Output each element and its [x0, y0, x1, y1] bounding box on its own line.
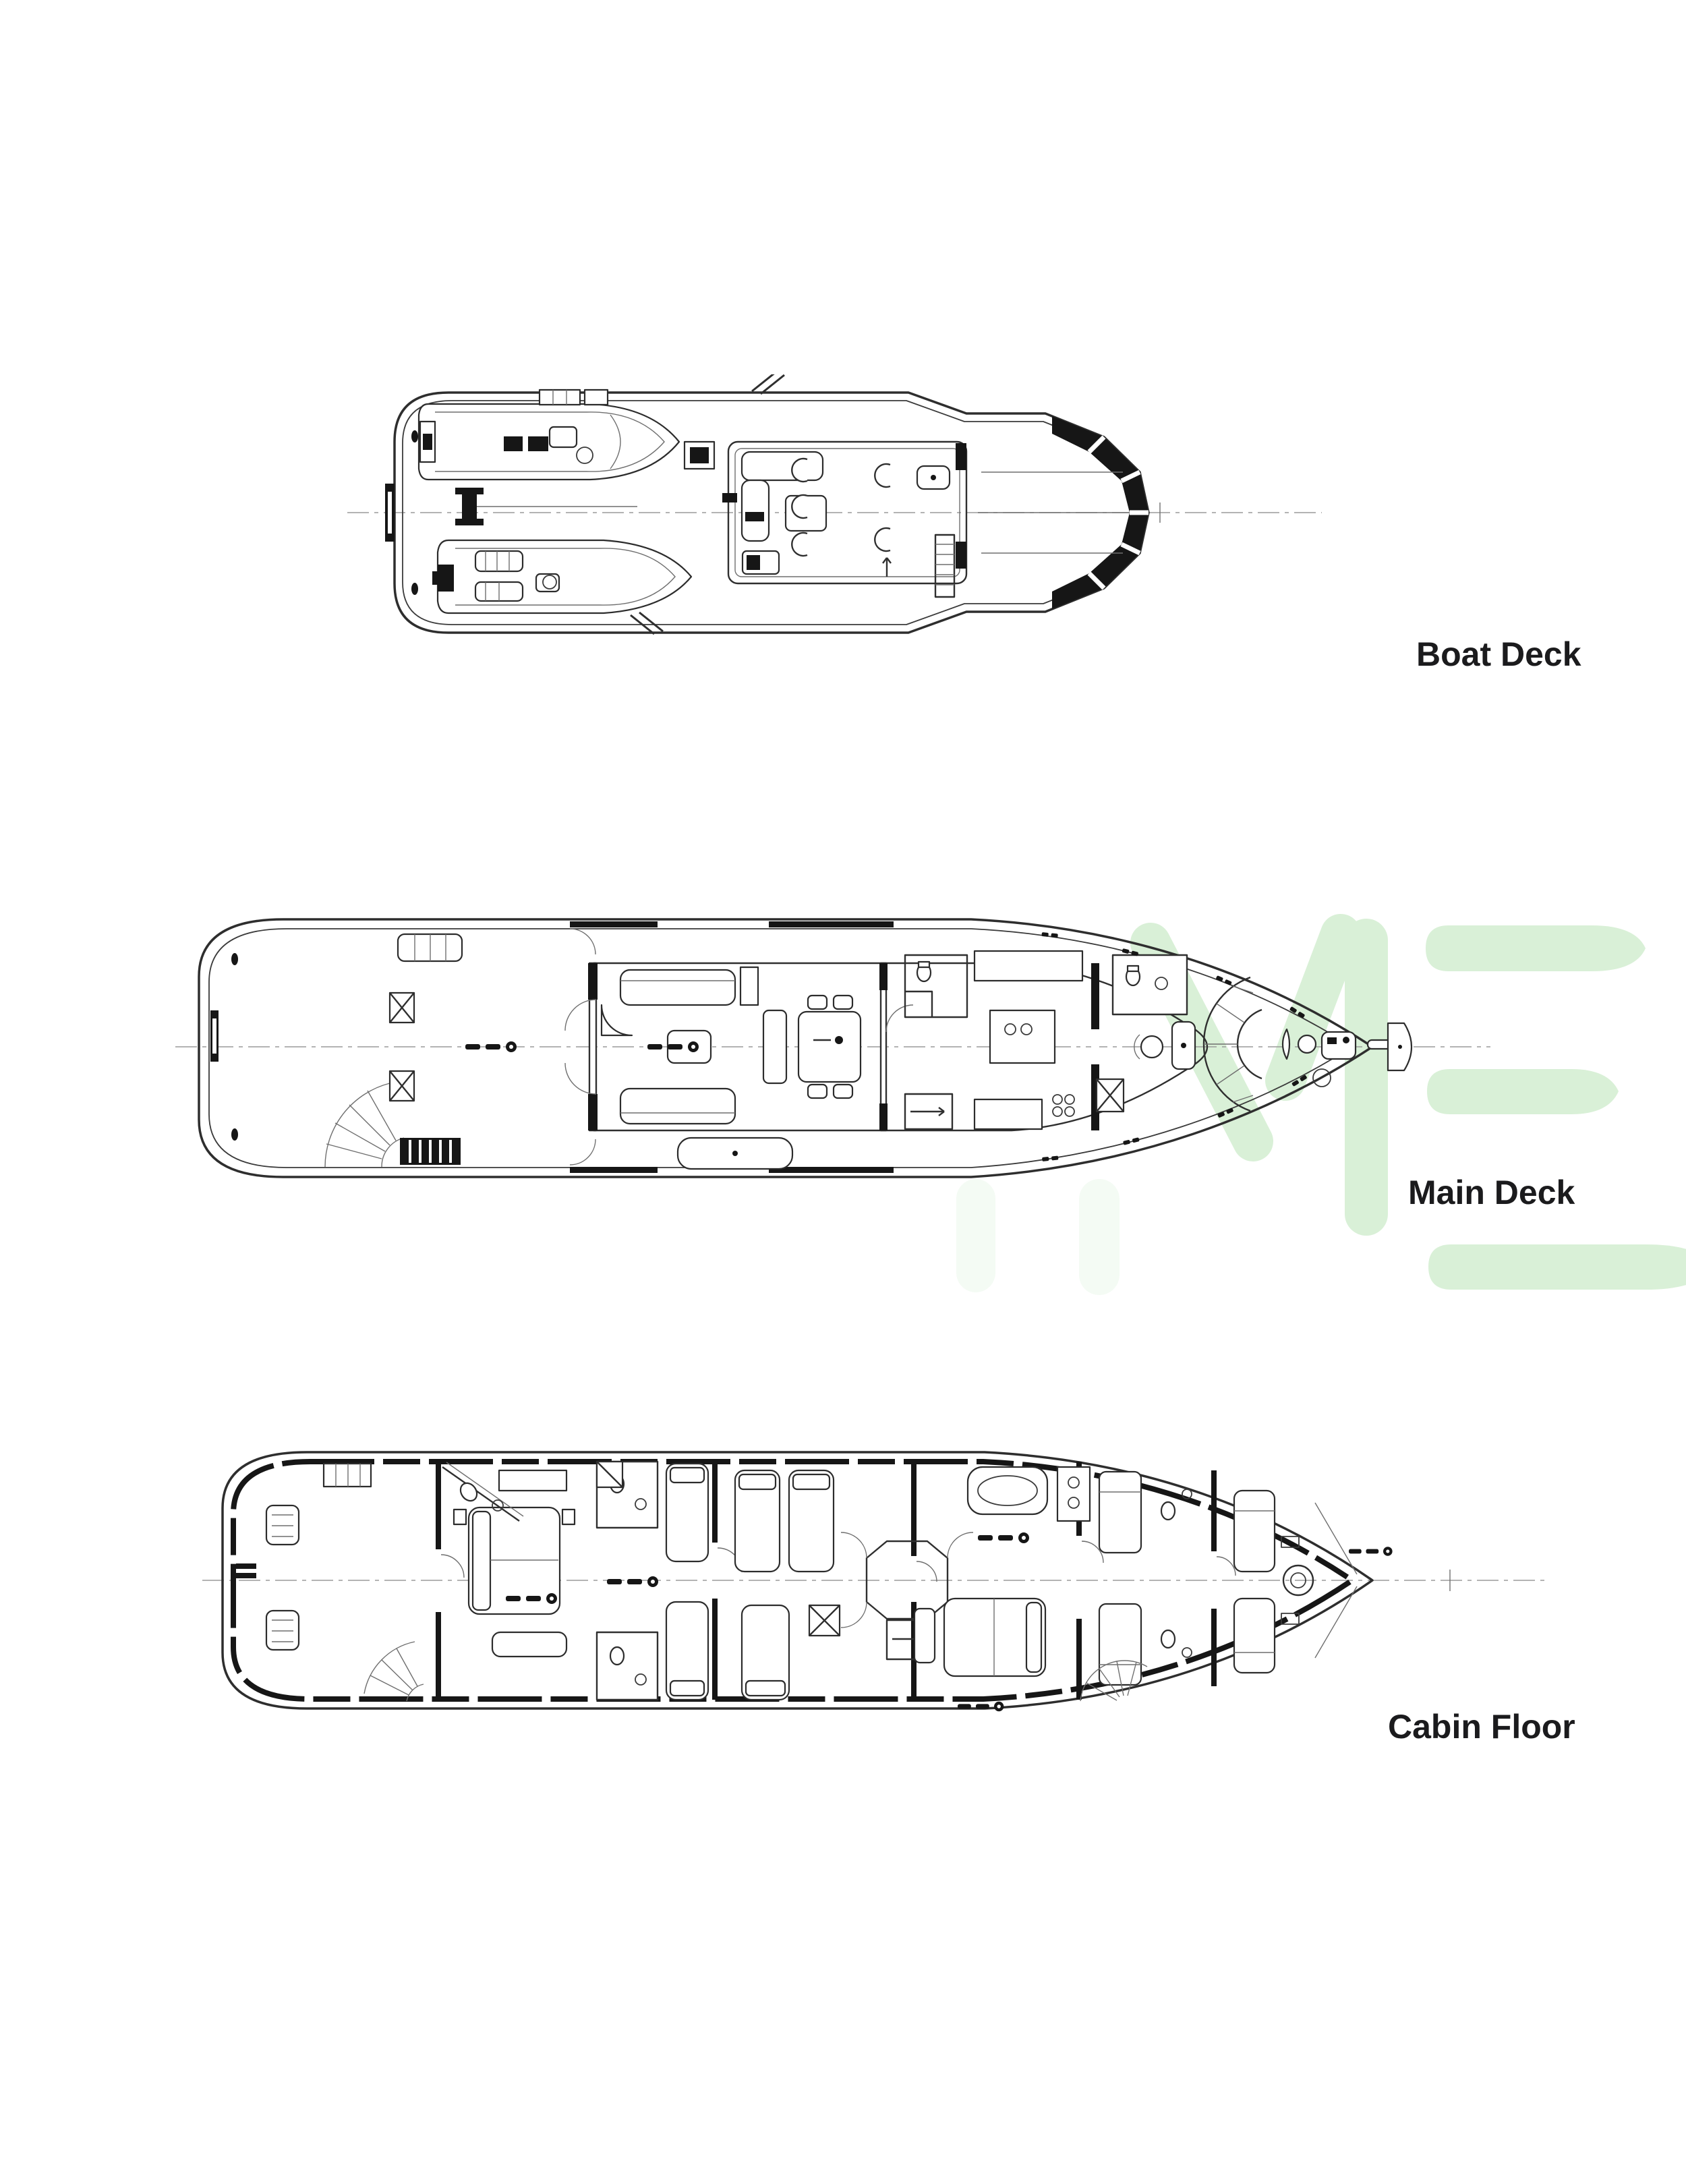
master-cabin [442, 1462, 575, 1657]
cabin-floor-plan [202, 1430, 1551, 1767]
crew-aft [236, 1464, 424, 1701]
aft-deck [210, 929, 595, 1167]
boat-deck-figure [347, 374, 1325, 644]
cabin-floor-label: Cabin Floor [1388, 1707, 1575, 1746]
dining-area [763, 996, 861, 1098]
boat-deck-label: Boat Deck [1416, 635, 1581, 674]
tender-crane [455, 488, 637, 525]
tender-bottom [432, 540, 691, 613]
vip-bathroom [968, 1467, 1090, 1543]
boat-deck-plan [347, 374, 1325, 644]
main-deck-plan [175, 897, 1497, 1268]
main-deck-figure [175, 897, 1497, 1268]
salon [602, 967, 758, 1124]
lounge-chairs [792, 459, 890, 556]
galley [975, 951, 1082, 1129]
tender-top [419, 404, 679, 480]
cabin-floor-figure [202, 1430, 1551, 1767]
main-deck-label: Main Deck [1408, 1173, 1575, 1212]
deck-plans-page: { "page": {"width": 2500, "height": 3238… [0, 0, 1686, 2184]
companionway-arrow [883, 558, 891, 577]
